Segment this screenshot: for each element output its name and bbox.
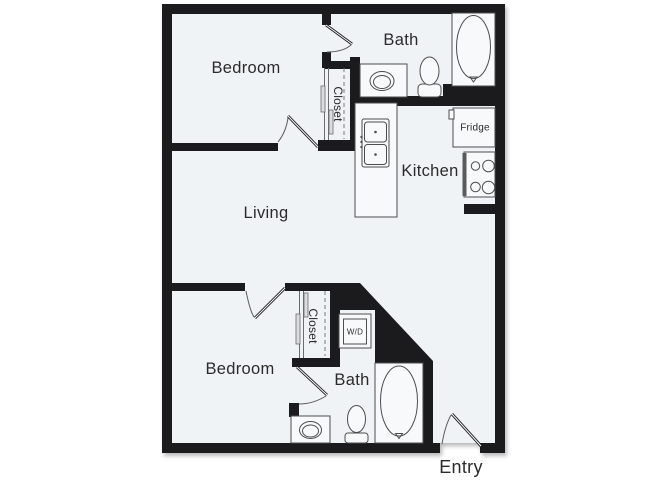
outer-wall-bottom-right [480, 443, 505, 453]
outer-wall-right [495, 4, 505, 453]
floor-plan-page: Bedroom Bath Closet Kitchen Fridge Livin… [0, 0, 670, 480]
tub-surround-icon [452, 13, 495, 86]
label-fridge: Fridge [460, 123, 490, 134]
toilet-icon [420, 57, 439, 85]
apartment-plan: Bedroom Bath Closet Kitchen Fridge Livin… [162, 4, 505, 453]
kitchen-island [355, 103, 397, 217]
room-label-bath-top: Bath [383, 31, 418, 49]
faucet-dot [360, 136, 362, 138]
wall-closet2-bottom [292, 358, 340, 367]
outer-wall-left [162, 4, 172, 453]
room-label-bath-bottom: Bath [334, 371, 369, 389]
wall-living-bedroom2-left [172, 283, 245, 291]
outer-wall-bottom-left [162, 443, 440, 453]
wall-kitchen-stub [464, 204, 505, 214]
sink-drain-dot [374, 153, 377, 156]
toilet-base-icon [418, 84, 441, 97]
wall-bedroom1-living-left [172, 143, 278, 151]
tub-surround-icon [375, 363, 423, 443]
room-label-closet-top: Closet [331, 86, 345, 122]
closet2-sliding-panel [296, 314, 300, 344]
stove-front-edge [463, 153, 467, 196]
floor-plan: Bedroom Bath Closet Kitchen Fridge Livin… [0, 0, 670, 480]
room-label-kitchen: Kitchen [401, 162, 458, 180]
wall-bath1-jamb-top [322, 14, 331, 25]
room-label-living: Living [244, 204, 289, 222]
vanity-counter-icon [360, 64, 407, 97]
faucet-dot [360, 141, 362, 143]
fridge-handle-icon [449, 110, 454, 119]
label-washer-dryer: W/D [347, 328, 363, 337]
label-entry: Entry [439, 457, 483, 477]
room-label-bedroom-bottom: Bedroom [205, 360, 274, 378]
wall-bath2-jamb [289, 403, 299, 417]
toilet-icon [348, 406, 366, 433]
room-label-closet-bottom: Closet [306, 308, 320, 344]
sink-drain-dot [374, 131, 377, 134]
toilet-base-icon [345, 433, 368, 443]
faucet-dot [360, 146, 362, 148]
closet1-sliding-panel [321, 86, 325, 112]
room-label-bedroom-top: Bedroom [211, 59, 280, 77]
